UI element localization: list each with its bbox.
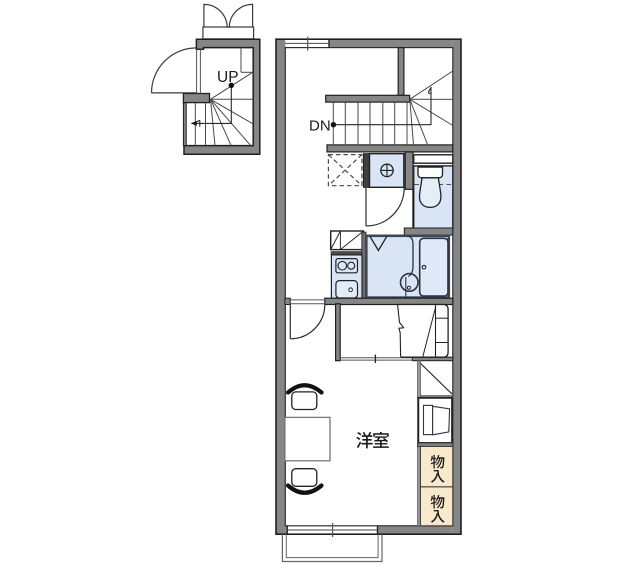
svg-text:DN: DN	[309, 118, 331, 135]
svg-text:UP: UP	[217, 69, 239, 86]
